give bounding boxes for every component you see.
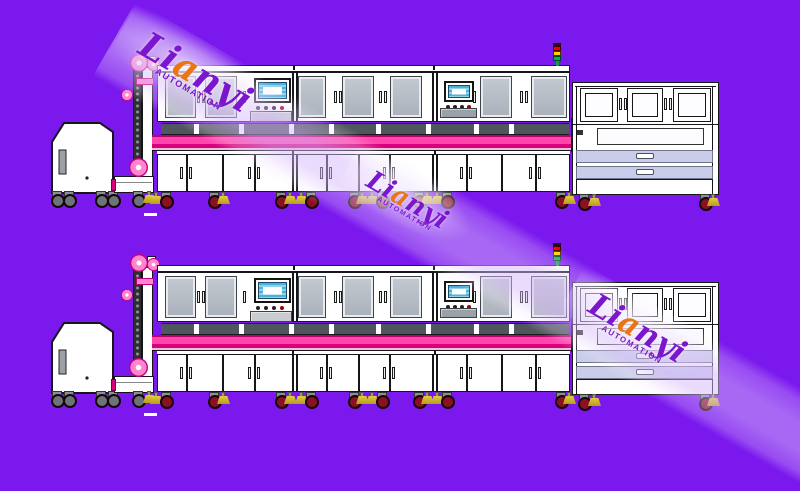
end-cabinet-recess xyxy=(597,328,704,345)
elevator-crossbar xyxy=(136,278,154,285)
machine-window xyxy=(480,76,512,118)
machine-window xyxy=(531,76,567,118)
door-handle xyxy=(379,91,382,103)
end-cabinet-window xyxy=(580,88,618,122)
machine-window xyxy=(298,276,326,318)
feeder-dot xyxy=(85,176,88,179)
feeder-machine xyxy=(48,120,118,195)
end-cabinet-divider xyxy=(573,124,718,125)
door-handle xyxy=(320,167,323,179)
leveling-foot xyxy=(588,394,601,407)
machine-window xyxy=(342,76,374,118)
caster-wheel-tire xyxy=(63,394,77,408)
lower-door-seam xyxy=(222,155,224,191)
lower-door-seam xyxy=(358,355,360,391)
lower-door-seam xyxy=(389,155,391,191)
lower-cabinet xyxy=(157,154,570,192)
door-handle xyxy=(320,367,323,379)
machine-window xyxy=(480,276,512,318)
ground-dash xyxy=(144,413,157,416)
door-handle xyxy=(257,367,260,379)
hmi-screen-display xyxy=(448,85,470,98)
caster-wheel xyxy=(106,391,118,405)
hmi-button xyxy=(272,106,276,110)
door-handle xyxy=(334,291,337,303)
lower-door-seam xyxy=(466,155,468,191)
door-handle xyxy=(384,291,387,303)
vent-gap xyxy=(474,124,479,134)
hmi-screen-display xyxy=(258,82,287,99)
lower-door-seam xyxy=(535,155,537,191)
hmi-button xyxy=(256,106,260,110)
vent-gap xyxy=(289,324,294,334)
end-cabinet-topline xyxy=(575,86,716,87)
door-handle xyxy=(329,167,332,179)
lower-door-seam xyxy=(501,155,503,191)
lower-door-seam xyxy=(222,355,224,391)
module-frame xyxy=(296,72,298,122)
lower-module-frame xyxy=(296,355,298,392)
table-accent xyxy=(111,179,116,191)
lower-module-frame xyxy=(432,155,434,192)
elevator-bottom-pulley xyxy=(129,358,148,377)
door-handle xyxy=(180,167,183,179)
lower-module-frame xyxy=(436,355,438,392)
elevator-crossbar xyxy=(136,78,154,85)
door-handle xyxy=(392,167,395,179)
door-handle xyxy=(392,367,395,379)
feeder-dot xyxy=(85,376,88,379)
hmi-button xyxy=(272,306,276,310)
end-cabinet-recess xyxy=(597,128,704,145)
machine-window xyxy=(390,76,422,118)
door-handle xyxy=(525,91,528,103)
elevator-side-roller xyxy=(121,289,133,301)
foot-base xyxy=(588,398,601,406)
vent-gap xyxy=(509,324,514,334)
door-handle xyxy=(460,367,463,379)
door-handle xyxy=(529,167,532,179)
caster-wheel-tire xyxy=(376,395,390,409)
conveyor-belt xyxy=(152,335,572,351)
door-handle xyxy=(520,91,523,103)
door-handle xyxy=(257,167,260,179)
signal-pole xyxy=(556,61,559,66)
mainline-top-cap xyxy=(157,265,570,272)
door-handle xyxy=(469,167,472,179)
foot-base xyxy=(707,398,720,406)
lower-door-seam xyxy=(254,355,256,391)
door-handle xyxy=(189,367,192,379)
feeder-machine xyxy=(48,320,118,395)
elevator-top-pulley xyxy=(130,254,148,272)
door-handle xyxy=(624,298,627,310)
drawer-2-handle xyxy=(636,369,654,375)
end-cabinet-latch xyxy=(577,330,583,335)
vent-gap xyxy=(289,124,294,134)
door-handle xyxy=(202,291,205,303)
machine-window xyxy=(165,276,196,318)
leveling-foot xyxy=(217,392,230,405)
door-handle xyxy=(197,91,200,103)
door-handle xyxy=(379,291,382,303)
vent-gap xyxy=(426,124,431,134)
door-handle xyxy=(619,98,622,110)
end-cabinet-window xyxy=(673,88,711,122)
hmi-lower-panel xyxy=(250,311,292,322)
hmi-button xyxy=(280,106,284,110)
door-handle xyxy=(460,167,463,179)
end-cabinet-divider xyxy=(573,324,718,325)
end-cabinet-window xyxy=(627,288,663,322)
cad-drawing-stage: Lianyi AUTOMATION Lianyi AUTOMATION Lian… xyxy=(0,0,800,438)
door-handle xyxy=(189,167,192,179)
module-frame xyxy=(296,272,298,322)
hmi-screen-display xyxy=(448,285,470,298)
door-handle xyxy=(624,98,627,110)
vent-gap xyxy=(194,124,199,134)
module-frame xyxy=(292,72,294,122)
caster-wheel xyxy=(62,391,74,405)
vent-gap xyxy=(329,124,334,134)
caster-wheel xyxy=(159,392,171,406)
door-handle xyxy=(538,167,541,179)
conveyor-belt xyxy=(152,135,572,151)
vent-gap xyxy=(376,124,381,134)
end-cabinet-window-pane xyxy=(632,293,658,317)
hmi-button xyxy=(256,306,260,310)
end-cabinet-kick xyxy=(576,379,713,380)
door-handle xyxy=(469,367,472,379)
machine-window xyxy=(165,76,196,118)
module-frame xyxy=(432,72,434,122)
lower-door-seam xyxy=(501,355,503,391)
lower-door-seam xyxy=(389,355,391,391)
vent-gap xyxy=(239,124,244,134)
end-cabinet-window-pane xyxy=(585,293,613,317)
machine-window xyxy=(205,276,237,318)
caster-wheel xyxy=(375,392,387,406)
signal-pole xyxy=(556,261,559,266)
production-line-row-2 xyxy=(0,200,800,440)
drawer-2-handle xyxy=(636,169,654,175)
caster-wheel xyxy=(94,391,106,405)
hmi-lower-panel-2 xyxy=(440,108,477,118)
door-handle xyxy=(664,98,667,110)
vent-gap xyxy=(426,324,431,334)
cap-tick xyxy=(433,266,435,270)
module-frame xyxy=(436,272,438,322)
end-cabinet-window-pane xyxy=(632,93,658,117)
end-cabinet-window xyxy=(627,88,663,122)
vent-gap xyxy=(239,324,244,334)
vent-gap xyxy=(474,324,479,334)
module-frame xyxy=(432,272,434,322)
hmi-button xyxy=(264,306,268,310)
vent-gap xyxy=(376,324,381,334)
door-handle xyxy=(529,367,532,379)
machine-window xyxy=(205,76,237,118)
lower-door-seam xyxy=(254,155,256,191)
caster-wheel xyxy=(131,391,143,405)
hmi-screen-2 xyxy=(444,281,474,302)
transfer-table-top xyxy=(116,179,152,183)
mainline-top-cap xyxy=(157,65,570,72)
lower-door-seam xyxy=(358,155,360,191)
vent-gap xyxy=(194,324,199,334)
hmi-screen-display xyxy=(258,282,287,299)
lower-door-seam xyxy=(326,355,328,391)
foot-base xyxy=(563,396,576,404)
end-cabinet-topline xyxy=(575,286,716,287)
cap-tick xyxy=(293,66,295,70)
end-cabinet-latch xyxy=(577,130,583,135)
door-handle xyxy=(339,291,342,303)
hmi-screen xyxy=(254,278,291,303)
caster-wheel xyxy=(304,392,316,406)
door-handle xyxy=(248,367,251,379)
end-cabinet-window-pane xyxy=(678,293,706,317)
end-cabinet-window-pane xyxy=(678,93,706,117)
door-handle xyxy=(384,91,387,103)
machine-window xyxy=(531,276,567,318)
end-cabinet-window xyxy=(673,288,711,322)
cap-tick xyxy=(433,66,435,70)
door-handle xyxy=(520,291,523,303)
lower-module-frame xyxy=(436,155,438,192)
drawer-1-handle xyxy=(636,353,654,359)
door-handle xyxy=(329,367,332,379)
lower-door-seam xyxy=(466,355,468,391)
door-handle xyxy=(669,98,672,110)
door-handle xyxy=(180,367,183,379)
cap-tick xyxy=(293,266,295,270)
caster-wheel-tire xyxy=(441,395,455,409)
lower-door-seam xyxy=(326,155,328,191)
vent-band xyxy=(161,123,569,135)
module-frame xyxy=(292,272,294,322)
door-handle xyxy=(202,91,205,103)
door-handle xyxy=(664,298,667,310)
lower-cabinet xyxy=(157,354,570,392)
elevator-bottom-pulley xyxy=(129,158,148,177)
door-handle xyxy=(383,367,386,379)
end-cabinet-window-pane xyxy=(585,93,613,117)
hmi-button xyxy=(264,106,268,110)
hmi-screen xyxy=(254,78,291,103)
lower-module-frame xyxy=(292,155,294,192)
lower-door-seam xyxy=(186,155,188,191)
feeder-slot xyxy=(59,350,66,374)
lower-door-seam xyxy=(186,355,188,391)
door-handle xyxy=(339,91,342,103)
door-handle xyxy=(243,91,246,103)
caster-wheel-tire xyxy=(160,395,174,409)
table-accent xyxy=(111,379,116,391)
end-cabinet-window xyxy=(580,288,618,322)
lower-door-seam xyxy=(535,355,537,391)
door-handle xyxy=(248,167,251,179)
door-handle xyxy=(197,291,200,303)
door-handle xyxy=(669,298,672,310)
foot-base xyxy=(217,396,230,404)
vent-band xyxy=(161,323,569,335)
end-cabinet-kick xyxy=(576,179,713,180)
machine-window xyxy=(342,276,374,318)
module-frame xyxy=(436,72,438,122)
door-handle xyxy=(619,298,622,310)
hmi-lower-panel-2 xyxy=(440,308,477,318)
hmi-lower-panel xyxy=(250,111,292,122)
lower-module-frame xyxy=(432,355,434,392)
door-handle xyxy=(525,291,528,303)
vent-gap xyxy=(329,324,334,334)
door-handle xyxy=(243,291,246,303)
elevator-top-pulley xyxy=(130,54,148,72)
caster-wheel-tire xyxy=(107,394,121,408)
machine-window xyxy=(390,276,422,318)
caster-wheel-tire xyxy=(305,395,319,409)
hmi-button xyxy=(280,306,284,310)
drawer-1-handle xyxy=(636,153,654,159)
caster-wheel xyxy=(440,392,452,406)
transfer-table-top xyxy=(116,379,152,383)
caster-wheel xyxy=(50,391,62,405)
vent-gap xyxy=(509,124,514,134)
feeder-slot xyxy=(59,150,66,174)
hmi-screen-2 xyxy=(444,81,474,102)
lower-module-frame xyxy=(296,155,298,192)
machine-window xyxy=(298,76,326,118)
door-handle xyxy=(334,91,337,103)
lower-module-frame xyxy=(292,355,294,392)
elevator-side-roller xyxy=(121,89,133,101)
door-handle xyxy=(538,367,541,379)
leveling-foot xyxy=(707,394,720,407)
door-handle xyxy=(383,167,386,179)
